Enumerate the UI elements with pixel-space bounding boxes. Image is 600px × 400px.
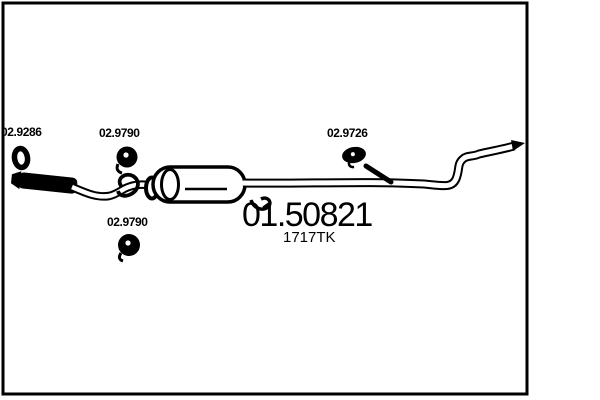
flex-pipe-body bbox=[18, 172, 78, 194]
label-gasket-part: 02.9286 bbox=[1, 126, 42, 138]
type-code: 1717TK bbox=[283, 230, 336, 245]
tail-pipe-end-tip bbox=[511, 140, 525, 151]
label-clamp-front-part: 02.9790 bbox=[99, 127, 140, 139]
flex-pipe bbox=[10, 170, 78, 195]
label-clamp-rear-part: 02.9726 bbox=[327, 127, 368, 139]
clamp-front-icon bbox=[117, 147, 138, 174]
gasket-ring-icon bbox=[13, 148, 29, 169]
main-part-number: 01.50821 bbox=[242, 198, 372, 232]
clamp-bottom-icon bbox=[118, 234, 140, 261]
catalog-diagram-page: 02.9286 02.9790 02.9726 02.9790 01.50821… bbox=[0, 0, 600, 400]
label-clamp-bottom-part: 02.9790 bbox=[107, 216, 148, 228]
tail-pipe-outline bbox=[243, 146, 514, 186]
